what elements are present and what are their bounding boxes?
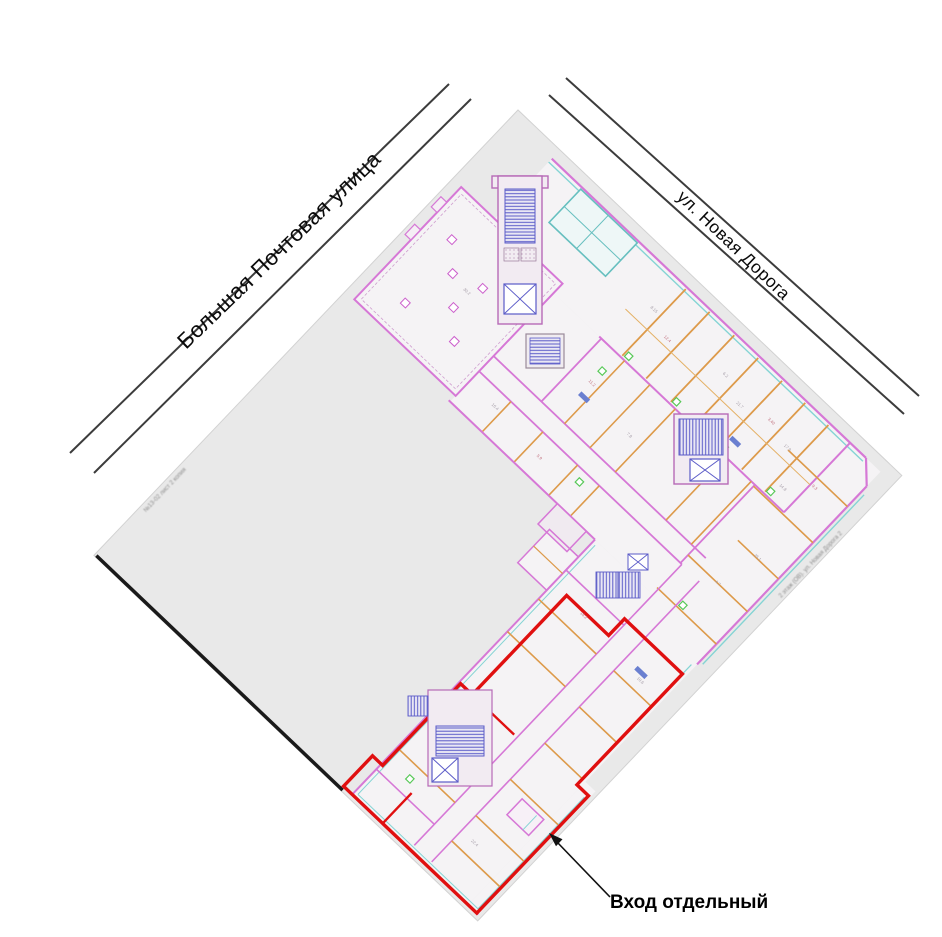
entrance-annotation: Вход отдельный [549,833,768,913]
floor-plan-canvas: 8.1512.46.221.73.4017.914.89.325.14.711.… [0,0,942,937]
stair-hatch [505,189,535,243]
stair-hatch [530,338,560,364]
stair-hatch [408,696,428,716]
stair-core-elbow [674,414,728,484]
stair-core-mid-small [526,334,564,368]
entrance-arrow-line [557,842,610,897]
stair-hatch [596,572,618,598]
entrance-label: Вход отдельный [610,892,768,913]
stair-core-top [492,176,548,324]
stair-hatch [679,419,723,455]
stair-hatch [618,572,640,598]
floor-plan-page: 8.1512.46.221.73.4017.914.89.325.14.711.… [0,0,942,937]
stair-hatch [436,726,484,756]
